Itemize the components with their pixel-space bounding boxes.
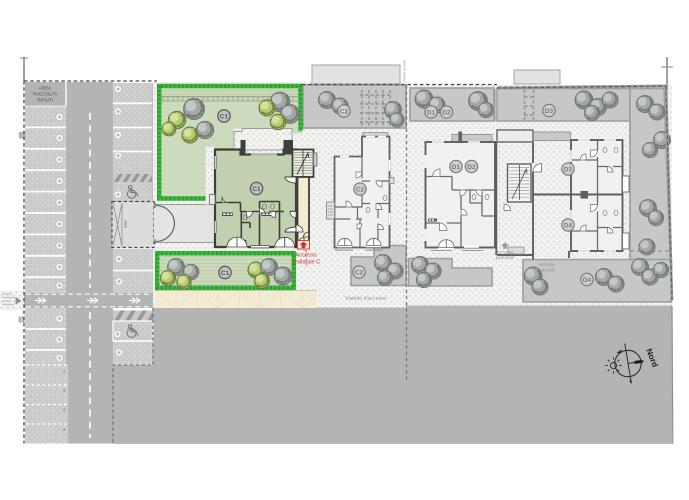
svg-text:C1: C1 <box>252 186 261 193</box>
svg-text:D1: D1 <box>427 109 436 116</box>
svg-text:C2: C2 <box>356 186 365 193</box>
svg-text:Vialetto d'accesso: Vialetto d'accesso <box>345 296 387 302</box>
svg-text:C2: C2 <box>340 108 349 115</box>
svg-text:C1: C1 <box>220 113 229 120</box>
svg-text:D2: D2 <box>442 109 451 116</box>
svg-text:pedonale C: pedonale C <box>292 260 321 266</box>
svg-text:RIFIUTI: RIFIUTI <box>37 98 53 103</box>
svg-text:AREA: AREA <box>39 86 52 91</box>
svg-text:D3: D3 <box>564 166 573 173</box>
svg-text:Accesso: Accesso <box>295 253 316 259</box>
svg-text:D4: D4 <box>564 222 573 229</box>
svg-text:C2: C2 <box>355 269 364 276</box>
svg-text:C1: C1 <box>221 270 230 277</box>
svg-text:Accesso: Accesso <box>497 250 514 255</box>
svg-text:RACCOLTA: RACCOLTA <box>33 92 58 97</box>
svg-text:D4: D4 <box>583 277 592 284</box>
svg-text:pedonale: pedonale <box>496 255 515 260</box>
svg-text:D2: D2 <box>467 164 476 171</box>
svg-text:D3: D3 <box>545 108 554 115</box>
svg-text:550: 550 <box>123 220 128 228</box>
svg-text:D1: D1 <box>452 164 461 171</box>
svg-text:strada privata: strada privata <box>403 60 407 82</box>
svg-text:Accesso: Accesso <box>538 262 555 267</box>
